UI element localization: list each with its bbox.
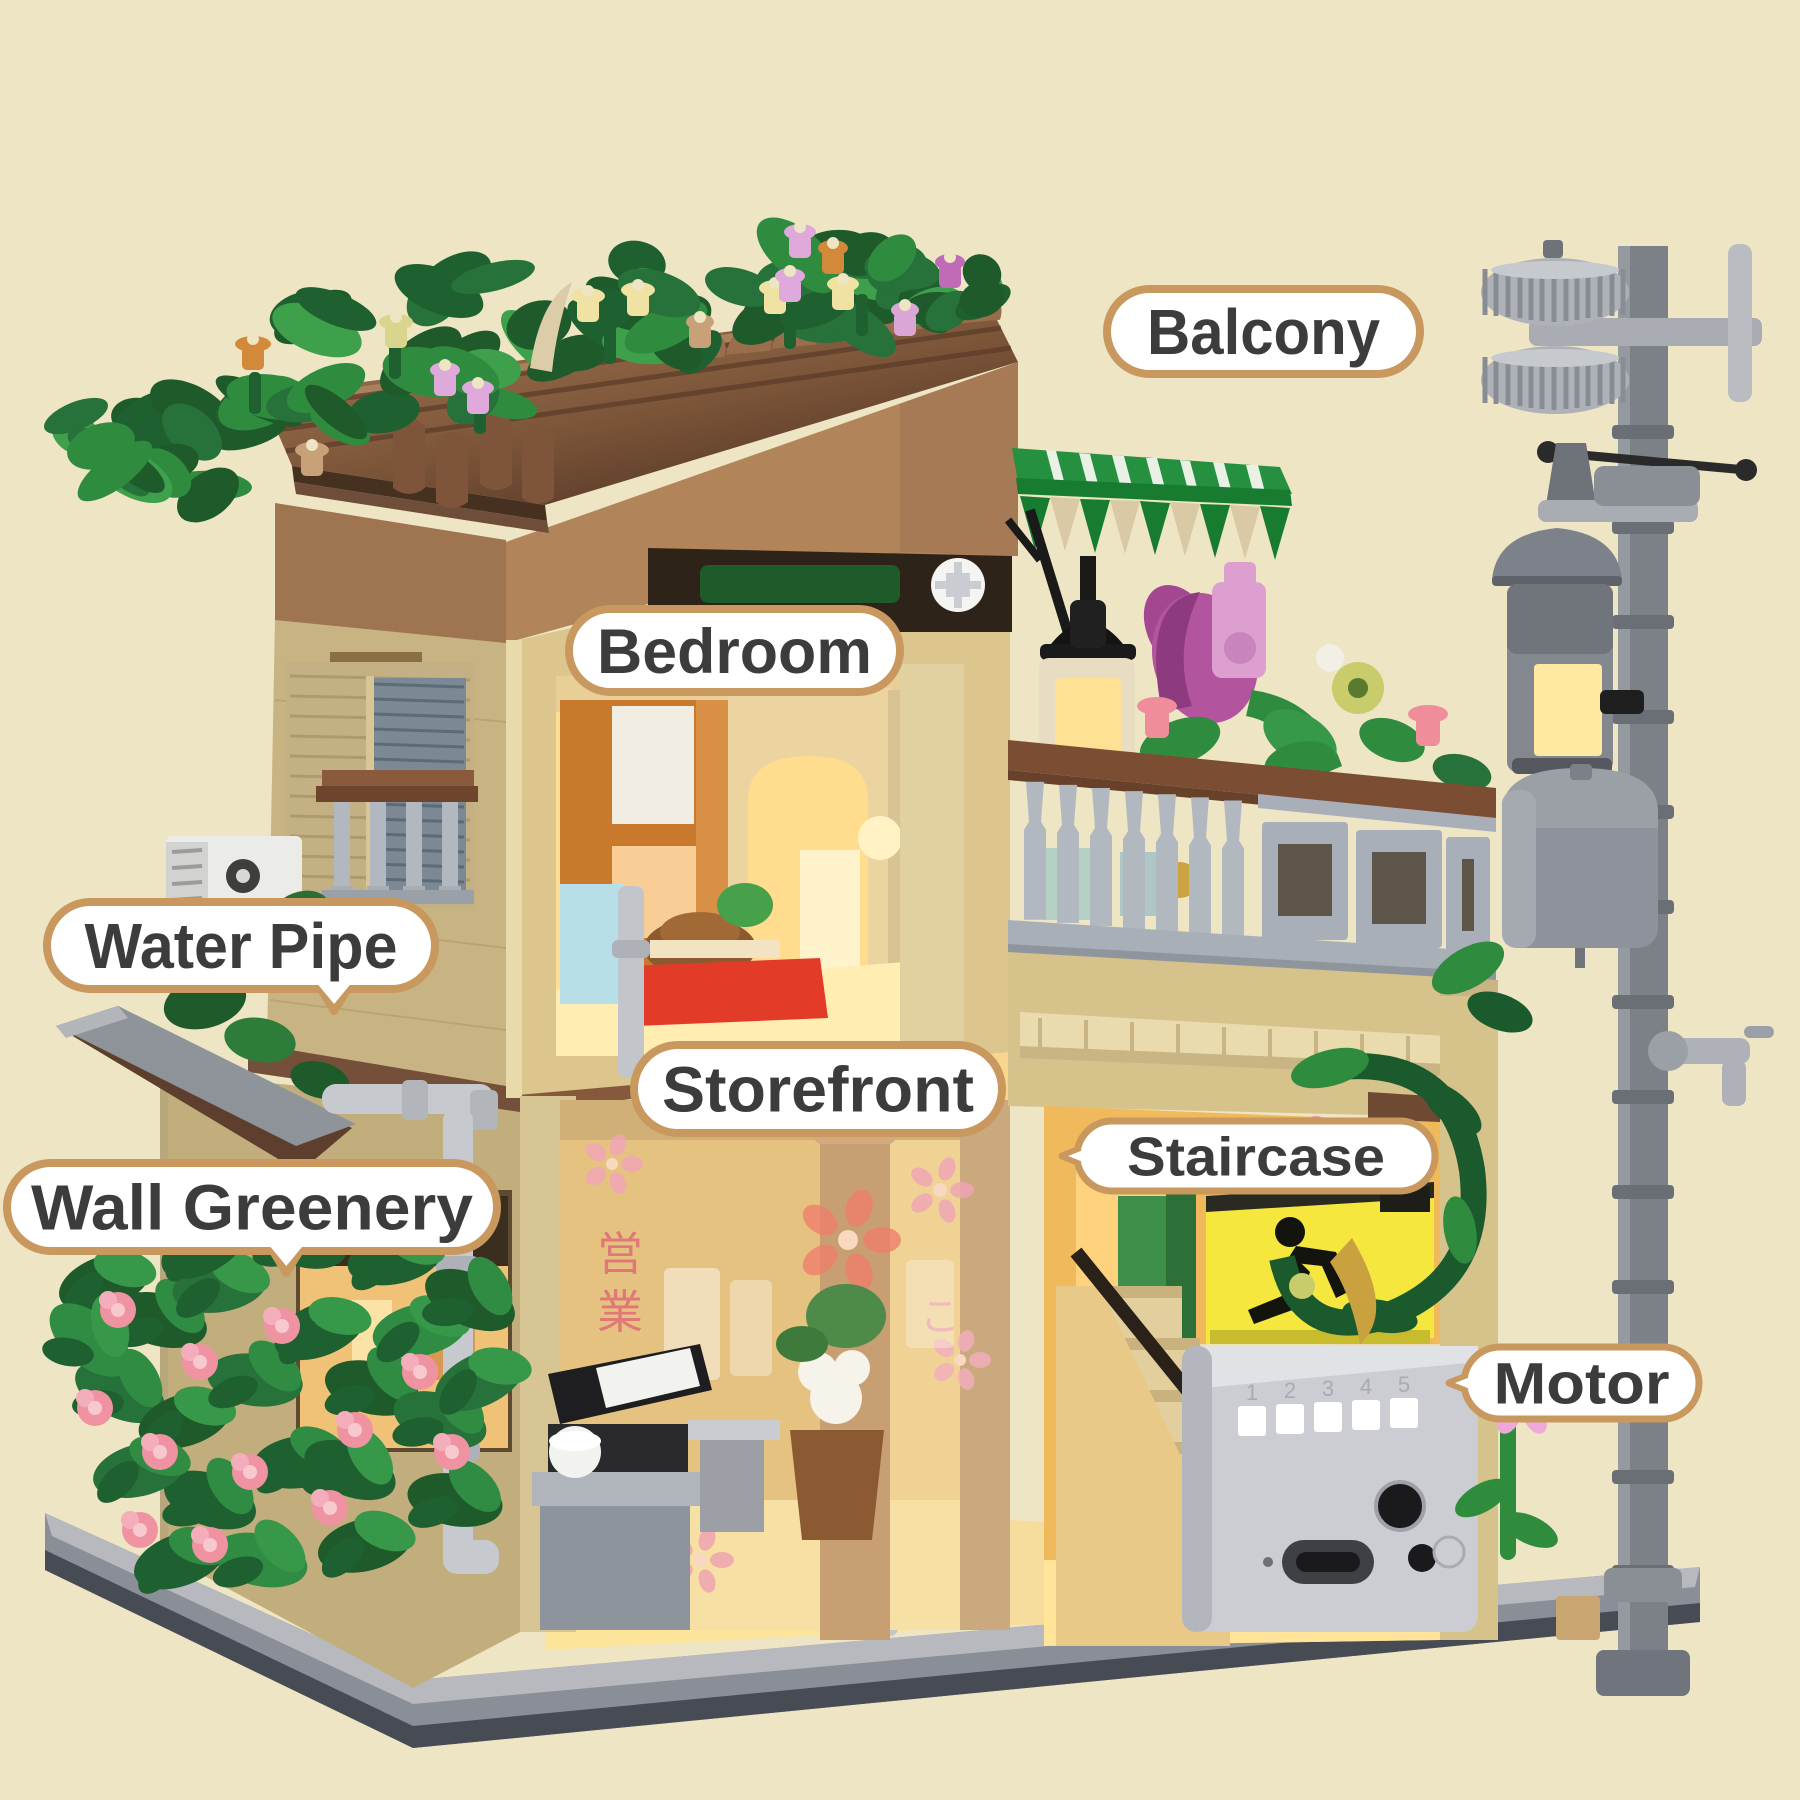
svg-text:営: 営 xyxy=(597,1228,643,1280)
svg-text:Storefront: Storefront xyxy=(662,1054,974,1126)
svg-text:4: 4 xyxy=(1360,1374,1372,1399)
svg-text:5: 5 xyxy=(1398,1372,1410,1397)
svg-text:Staircase: Staircase xyxy=(1127,1126,1385,1188)
svg-text:Bedroom: Bedroom xyxy=(597,617,872,687)
svg-text:業: 業 xyxy=(597,1286,643,1338)
svg-text:1: 1 xyxy=(1246,1380,1258,1405)
svg-text:Motor: Motor xyxy=(1494,1352,1670,1417)
svg-text:Wall Greenery: Wall Greenery xyxy=(31,1172,473,1244)
svg-text:2: 2 xyxy=(1284,1378,1296,1403)
svg-text:3: 3 xyxy=(1322,1376,1334,1401)
svg-text:Balcony: Balcony xyxy=(1147,296,1380,368)
svg-text:Water Pipe: Water Pipe xyxy=(85,910,398,982)
